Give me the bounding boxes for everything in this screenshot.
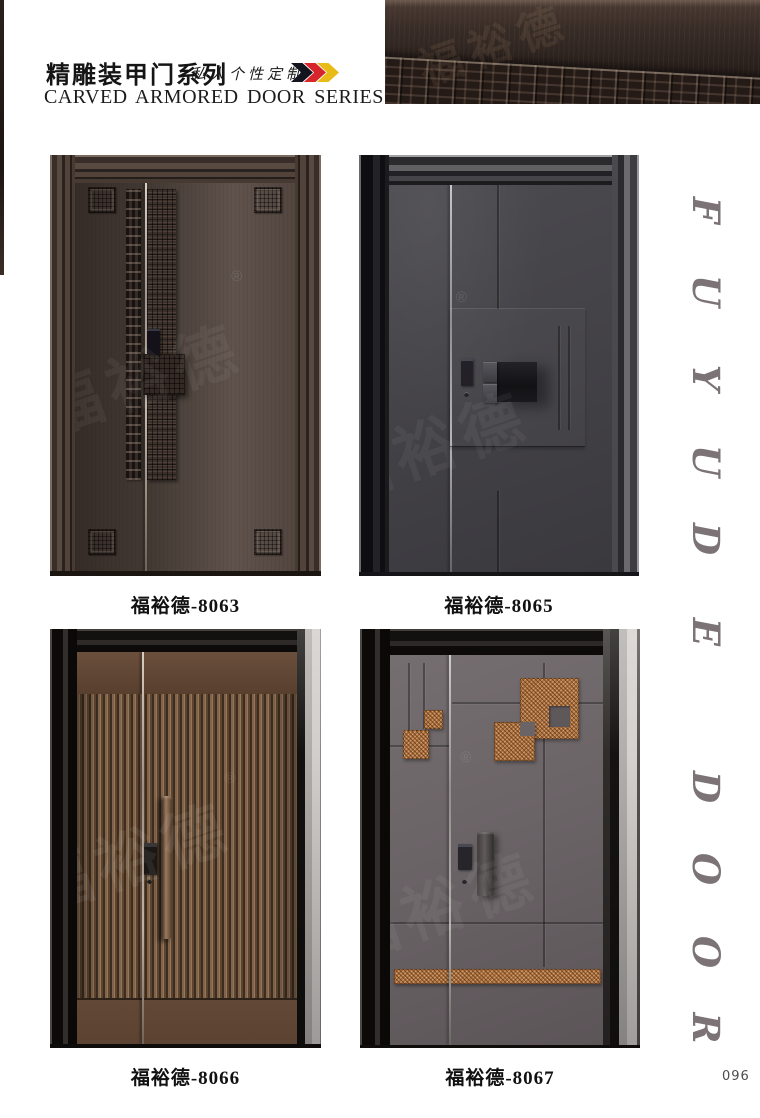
brand-letter: R (684, 1006, 728, 1050)
panel-groove (497, 491, 499, 572)
keyhole-dot (462, 879, 467, 884)
corner-ornament (254, 187, 282, 213)
smooth-bottom-band (77, 998, 297, 1044)
door-pull-handle (161, 796, 172, 938)
smooth-top-band (77, 652, 297, 696)
door-frame-left (359, 155, 389, 576)
banner-top-edge-highlight (385, 0, 760, 7)
product-model-label: 福裕德-8063 (50, 591, 321, 618)
door-slab: 福裕德 ® (77, 652, 297, 1044)
corner-ornament (88, 529, 116, 555)
product-figure-8063: 福裕德 ® 福裕德-8063 (50, 155, 321, 576)
brand-letter: E (684, 610, 728, 654)
brand-letter: U (684, 269, 728, 313)
handle-knob (483, 362, 497, 382)
smart-lock-keypad (461, 358, 473, 386)
product-figure-8067: 福裕德 ® 福裕德-8067 (360, 629, 640, 1048)
door-frame-sill (50, 1044, 321, 1048)
keyhole-dot (464, 392, 469, 397)
carved-dot-band (126, 189, 141, 480)
product-figure-8066: 福裕德 ® 福裕德-8066 (50, 629, 321, 1048)
brand-letter: D (684, 517, 728, 561)
brand-letter: Y (684, 356, 728, 400)
brand-letter: D (684, 765, 728, 809)
product-figure-8065: 福裕德 ® 福裕德-8065 (359, 155, 639, 576)
series-title-en: CARVED ARMORED DOOR SERIES (44, 86, 384, 109)
recessed-gray-square (549, 706, 570, 727)
panel-groove (558, 326, 560, 430)
door-frame-top (50, 629, 321, 652)
registered-mark: ® (460, 749, 471, 766)
catalog-page: 精雕装甲门系列 私人个性定制 CARVED ARMORED DOOR SERIE… (0, 0, 760, 1118)
door-slab: 福裕德 ® (390, 655, 603, 1045)
door-frame-left (50, 155, 75, 576)
panel-groove (497, 185, 499, 309)
product-model-label: 福裕德-8065 (359, 591, 639, 618)
door-frame-top (360, 629, 640, 655)
door-frame-top (359, 155, 639, 185)
door-frame-right (297, 629, 321, 1048)
door-frame-left (50, 629, 77, 1048)
brand-letter: O (684, 847, 728, 891)
door-frame-right (603, 629, 640, 1048)
door-frame-top (50, 155, 321, 183)
door-frame-left (360, 629, 390, 1048)
corner-ornament (88, 187, 116, 213)
product-model-label: 福裕德-8066 (50, 1063, 321, 1090)
handle-knob (483, 384, 497, 404)
registered-mark: ® (231, 268, 242, 285)
series-subtitle-cn: 私人个性定制 (191, 63, 305, 84)
brand-letter: F (684, 188, 728, 232)
chevron-logo (291, 63, 347, 82)
copper-square-accent (424, 710, 443, 729)
door-handle-block (497, 362, 536, 402)
left-edge-strip (0, 0, 4, 275)
fluted-rib-panel (77, 694, 297, 998)
gray-square-notch (520, 722, 535, 736)
astragal-strip (449, 655, 451, 1045)
keyhole-dot (147, 879, 152, 884)
door-frame-sill (360, 1045, 640, 1048)
door-pull-handle (477, 832, 494, 895)
door-frame-right (612, 155, 639, 576)
brand-letter: O (684, 930, 728, 974)
door-slab: 福裕德 ® (389, 185, 612, 572)
copper-accent-strip (394, 969, 600, 984)
panel-groove (390, 922, 603, 924)
registered-mark: ® (456, 289, 467, 306)
smart-lock-keypad (144, 843, 157, 875)
smart-lock (147, 329, 160, 355)
smart-lock-keypad (458, 844, 472, 870)
carved-lock-box (143, 354, 185, 395)
product-model-label: 福裕德-8067 (360, 1063, 640, 1090)
door-frame-sill (50, 571, 321, 576)
corner-ornament (254, 529, 282, 555)
door-frame-sill (359, 572, 639, 576)
copper-square-accent (403, 730, 429, 759)
banner-photo-carved-wood: 福裕德 (385, 0, 760, 104)
page-number: 096 (722, 1069, 750, 1084)
door-slab: 福裕德 ® (75, 183, 295, 571)
door-frame-right (295, 155, 321, 576)
panel-groove (568, 326, 570, 430)
brand-letter: U (684, 439, 728, 483)
